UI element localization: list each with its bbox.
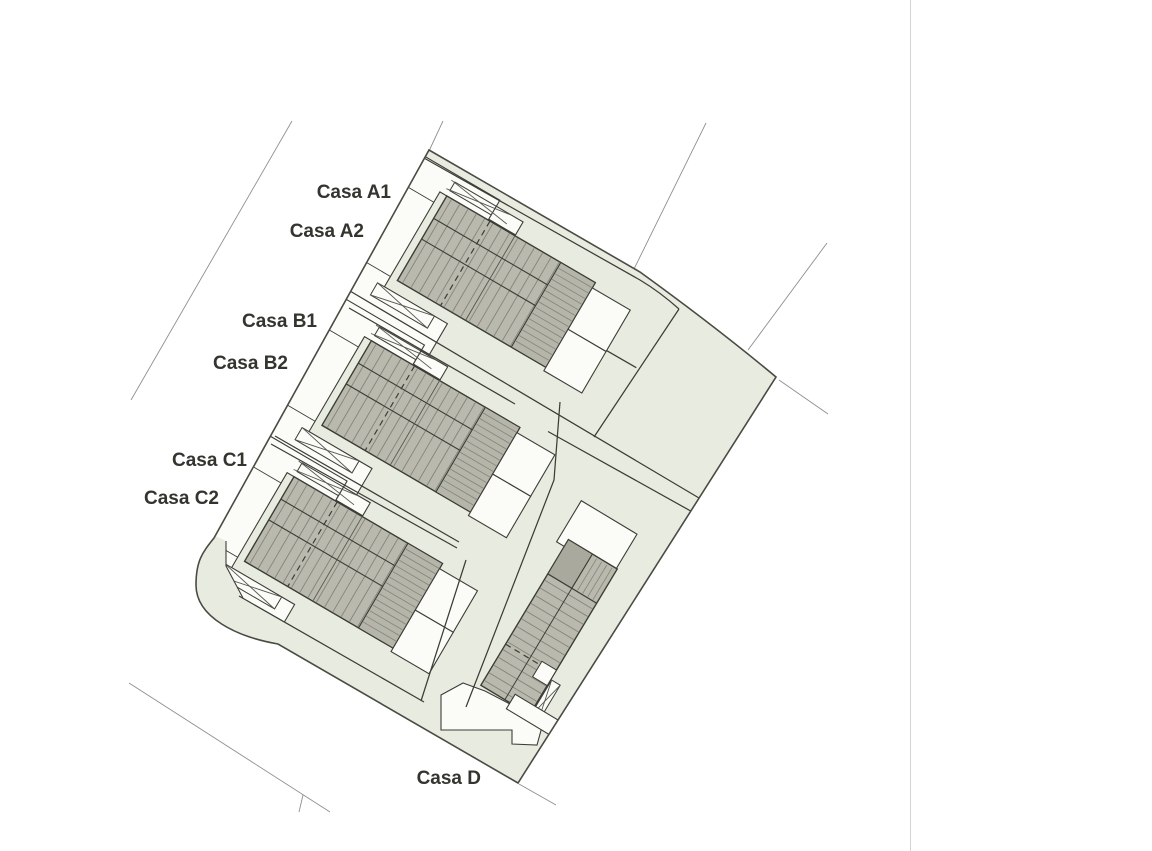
svg-text:Casa A1: Casa A1	[317, 182, 392, 203]
svg-text:Casa C2: Casa C2	[144, 488, 219, 509]
svg-text:Casa A2: Casa A2	[290, 221, 364, 242]
svg-text:Casa D: Casa D	[417, 768, 481, 789]
svg-text:Casa B1: Casa B1	[242, 311, 317, 332]
svg-text:Casa C1: Casa C1	[172, 450, 247, 471]
svg-text:Casa B2: Casa B2	[213, 353, 288, 374]
